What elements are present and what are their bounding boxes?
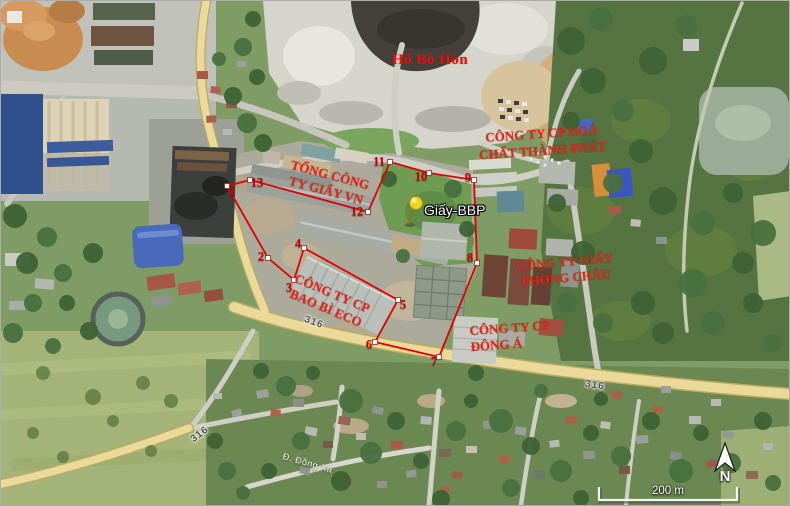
boundary-vertex-label: 12 xyxy=(351,205,364,220)
boundary-vertex-label: 7 xyxy=(431,355,437,370)
boundary-vertex-label: 5 xyxy=(400,298,406,313)
company-label-phong-chau: CÔNG TY GIẤY PHONG CHÂU xyxy=(507,249,624,291)
satellite-map-figure: Hồ Bô Hòn TỔNG CÔNG TY GIẤY VN CÔNG TY C… xyxy=(0,0,790,506)
pin-label: Giấy-BBP xyxy=(424,202,485,218)
boundary-vertex-label: 10 xyxy=(415,170,428,185)
street-name-label: Đ. Đồng Xã xyxy=(282,451,334,475)
labels-layer: Hồ Bô Hòn TỔNG CÔNG TY GIẤY VN CÔNG TY C… xyxy=(1,1,790,506)
boundary-vertex-label: 6 xyxy=(366,338,372,353)
boundary-vertex-label: 2 xyxy=(258,250,264,265)
scale-bar-label: 200 m xyxy=(638,485,698,497)
boundary-vertex-label: 11 xyxy=(373,155,385,170)
route-316-label: 316 xyxy=(189,424,211,445)
north-label: N xyxy=(715,468,735,485)
lake-label: Hồ Bô Hòn xyxy=(392,52,468,69)
route-316-label: 316 xyxy=(303,314,325,331)
boundary-vertex-label: 3 xyxy=(286,281,292,296)
boundary-vertex-label: 4 xyxy=(295,237,301,252)
company-label-bao-bi-eco: CÔNG TY CP BAO BÌ ECO xyxy=(282,269,376,333)
boundary-vertex-label: 9 xyxy=(465,171,471,186)
company-label-giay-vn: TỔNG CÔNG TY GIẤY VN xyxy=(276,155,381,212)
company-label-thanh-phat: CÔNG TY CP HOÁ CHẤT THÀNH PHÁT xyxy=(471,120,613,164)
company-label-dong-a: CÔNG TY CP ĐÔNG Á xyxy=(469,317,561,355)
route-316-label: 316 xyxy=(584,379,605,393)
boundary-vertex-label: 1 xyxy=(229,185,235,200)
boundary-vertex-label: 13 xyxy=(251,176,264,191)
boundary-vertex-label: 8 xyxy=(467,251,473,266)
